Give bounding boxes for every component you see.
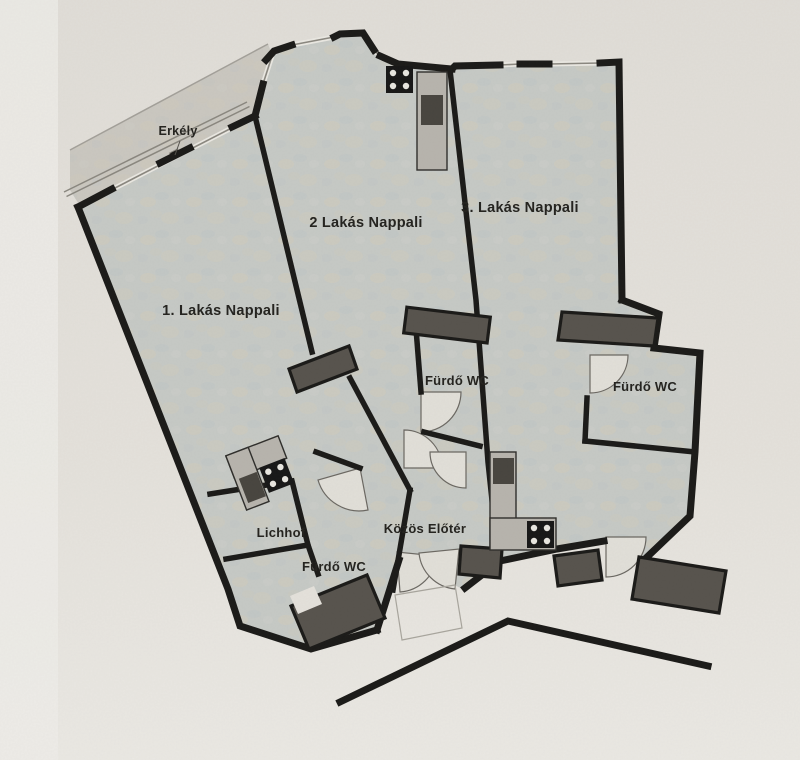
floor-plan-svg: Erkély 1. Lakás Nappali 2 Lakás Nappali … — [0, 0, 800, 760]
scan-noise-overlay — [0, 0, 800, 760]
